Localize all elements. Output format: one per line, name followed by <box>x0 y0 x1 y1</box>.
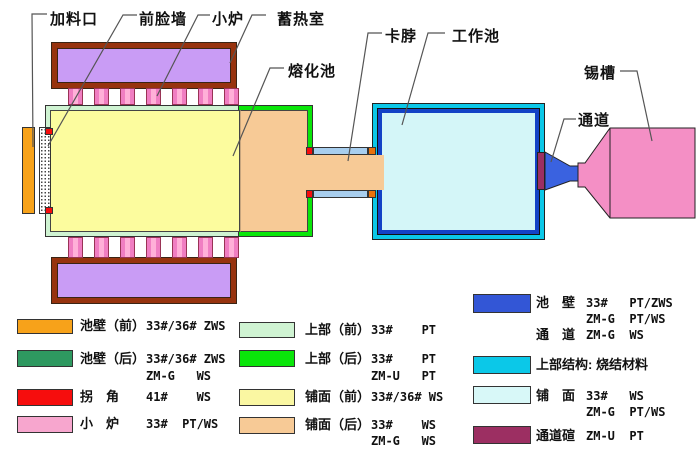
label-tin-bath: 锡槽 <box>584 62 616 83</box>
label-small-furnace: 小炉 <box>212 8 244 29</box>
label-melting-pool: 熔化池 <box>288 60 336 81</box>
tin-bath-shape <box>578 128 695 218</box>
label-neck: 卡脖 <box>385 25 417 46</box>
leader-lines <box>32 14 652 162</box>
label-working-pool: 工作池 <box>452 25 500 46</box>
furnace-diagram: 加料口 前脸墙 小炉 蓄热室 熔化池 卡脖 工作池 锡槽 通道 池壁（前） 33… <box>0 0 700 456</box>
label-channel: 通道 <box>578 109 610 130</box>
label-front-face-wall: 前脸墙 <box>139 8 187 29</box>
label-feed-port: 加料口 <box>50 8 98 29</box>
channel-shape <box>545 152 578 190</box>
label-regenerator: 蓄热室 <box>277 8 325 29</box>
